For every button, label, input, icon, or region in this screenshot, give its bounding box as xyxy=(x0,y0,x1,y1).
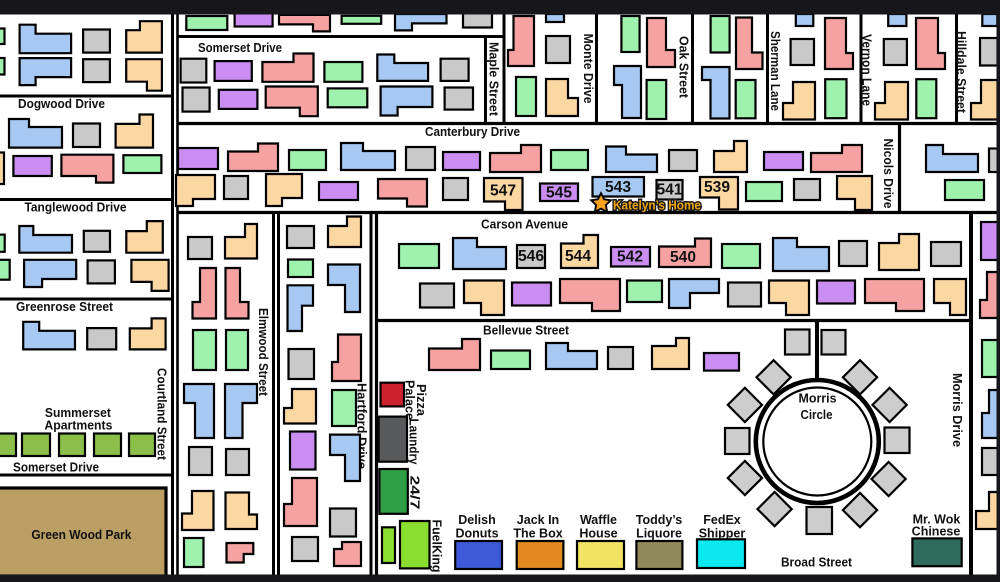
svg-text:Greenrose Street: Greenrose Street xyxy=(16,300,114,314)
svg-text:FedEx: FedEx xyxy=(703,513,741,527)
svg-text:Morris Drive: Morris Drive xyxy=(950,373,964,447)
svg-text:Courtland Street: Courtland Street xyxy=(155,368,169,461)
svg-text:Dogwood Drive: Dogwood Drive xyxy=(18,97,105,111)
svg-text:541: 541 xyxy=(657,182,683,199)
svg-text:543: 543 xyxy=(605,179,631,196)
svg-text:24/7: 24/7 xyxy=(408,476,422,510)
svg-text:544: 544 xyxy=(565,248,591,265)
svg-text:Toddy’s: Toddy’s xyxy=(636,513,683,527)
svg-text:Broad Street: Broad Street xyxy=(781,556,853,570)
svg-text:Carson Avenue: Carson Avenue xyxy=(481,218,568,232)
svg-text:The Box: The Box xyxy=(513,527,562,541)
svg-text:Nicols Drive: Nicols Drive xyxy=(881,139,895,209)
svg-text:545: 545 xyxy=(546,185,572,202)
svg-text:Waffle: Waffle xyxy=(580,513,617,527)
svg-text:Elmwood Street: Elmwood Street xyxy=(256,308,270,397)
svg-text:Chinese: Chinese xyxy=(912,525,961,539)
svg-text:Apartments: Apartments xyxy=(44,419,112,433)
svg-text:Sherman Lane: Sherman Lane xyxy=(768,31,782,111)
svg-text:Morris: Morris xyxy=(799,392,837,406)
svg-text:Monte Drive: Monte Drive xyxy=(581,34,595,104)
svg-text:Hilldale Street: Hilldale Street xyxy=(954,31,968,114)
svg-text:Liquore: Liquore xyxy=(636,527,682,541)
svg-text:539: 539 xyxy=(704,179,730,196)
svg-text:Vernon Lane: Vernon Lane xyxy=(860,34,874,106)
svg-text:Somerset Drive: Somerset Drive xyxy=(13,461,99,475)
svg-text:Donuts: Donuts xyxy=(455,527,498,541)
svg-text:Circle: Circle xyxy=(801,408,833,422)
svg-text:Jack In: Jack In xyxy=(517,513,559,527)
svg-text:Palace: Palace xyxy=(403,380,417,420)
svg-text:Bellevue Street: Bellevue Street xyxy=(483,324,570,338)
svg-text:Maple Street: Maple Street xyxy=(487,42,501,117)
svg-text:Oak Street: Oak Street xyxy=(677,36,691,99)
svg-text:Delish: Delish xyxy=(458,513,496,527)
svg-text:Canterbury Drive: Canterbury Drive xyxy=(425,125,520,139)
svg-text:Green Wood Park: Green Wood Park xyxy=(31,528,131,542)
svg-text:546: 546 xyxy=(518,248,544,265)
svg-text:Katelyn’s Home: Katelyn’s Home xyxy=(613,198,701,213)
svg-text:Tanglewood Drive: Tanglewood Drive xyxy=(25,201,127,215)
svg-text:547: 547 xyxy=(490,183,516,200)
svg-text:Laundry: Laundry xyxy=(407,419,421,465)
svg-text:Somerset Drive: Somerset Drive xyxy=(198,41,282,55)
svg-text:FuelKing: FuelKing xyxy=(430,520,444,573)
svg-text:House: House xyxy=(579,527,617,541)
svg-text:540: 540 xyxy=(670,249,696,266)
svg-text:542: 542 xyxy=(617,249,643,266)
